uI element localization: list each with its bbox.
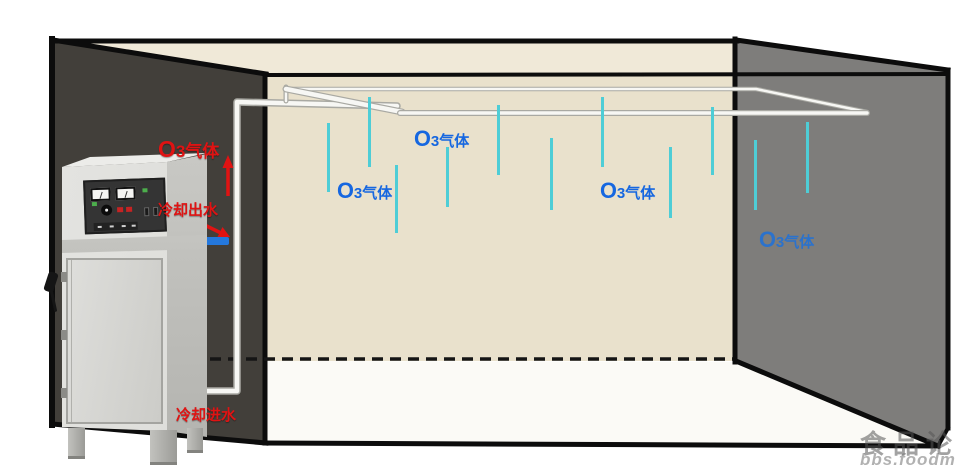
gas-drop-line xyxy=(446,147,449,207)
ozone-room-diagram: O3气体O3气体O3气体O3气体 O3气体 xyxy=(0,0,956,472)
red-button-2 xyxy=(126,207,132,212)
cooling-water-inlet-label: 冷却进水 xyxy=(176,404,236,425)
control-knob xyxy=(101,204,112,215)
panel-label-strip xyxy=(94,222,138,232)
machine-door xyxy=(66,258,163,424)
machine-foot-right xyxy=(187,428,203,453)
door-hinge-top xyxy=(61,272,67,282)
toggle-switch-1 xyxy=(144,207,149,216)
gas-drop-line xyxy=(711,107,714,175)
gas-drop-line xyxy=(497,105,500,175)
machine-control-panel xyxy=(83,178,167,235)
gas-drop-line xyxy=(395,165,398,233)
ozone-gas-label: O3气体 xyxy=(414,126,469,152)
gas-drop-line xyxy=(368,97,371,167)
door-hinge-middle xyxy=(61,330,67,340)
gas-drop-line xyxy=(601,97,604,167)
red-button-1 xyxy=(117,207,123,212)
ozone-gas-label: O3气体 xyxy=(759,227,814,253)
gas-up-arrow xyxy=(223,155,234,196)
gas-drop-line xyxy=(327,123,330,192)
analog-meter-right xyxy=(115,187,135,201)
gas-drop-line xyxy=(669,147,672,218)
machine-foot-left xyxy=(68,428,85,459)
gas-drop-line xyxy=(550,138,553,210)
ozone-gas-out-label: O3气体 xyxy=(158,136,219,163)
ozone-gas-label: O3气体 xyxy=(600,178,655,204)
door-hinge-bottom xyxy=(61,388,67,398)
cooling-water-outlet-label: 冷却出水 xyxy=(158,199,218,220)
machine-foot-front xyxy=(150,430,177,465)
analog-meter-left xyxy=(90,188,110,202)
power-indicator-led xyxy=(142,188,147,192)
gas-drop-line xyxy=(806,122,809,193)
ozone-gas-label: O3气体 xyxy=(337,178,392,204)
watermark-url: bbs.foodma xyxy=(860,450,956,470)
gas-drop-line xyxy=(754,140,757,210)
status-led xyxy=(92,202,97,206)
